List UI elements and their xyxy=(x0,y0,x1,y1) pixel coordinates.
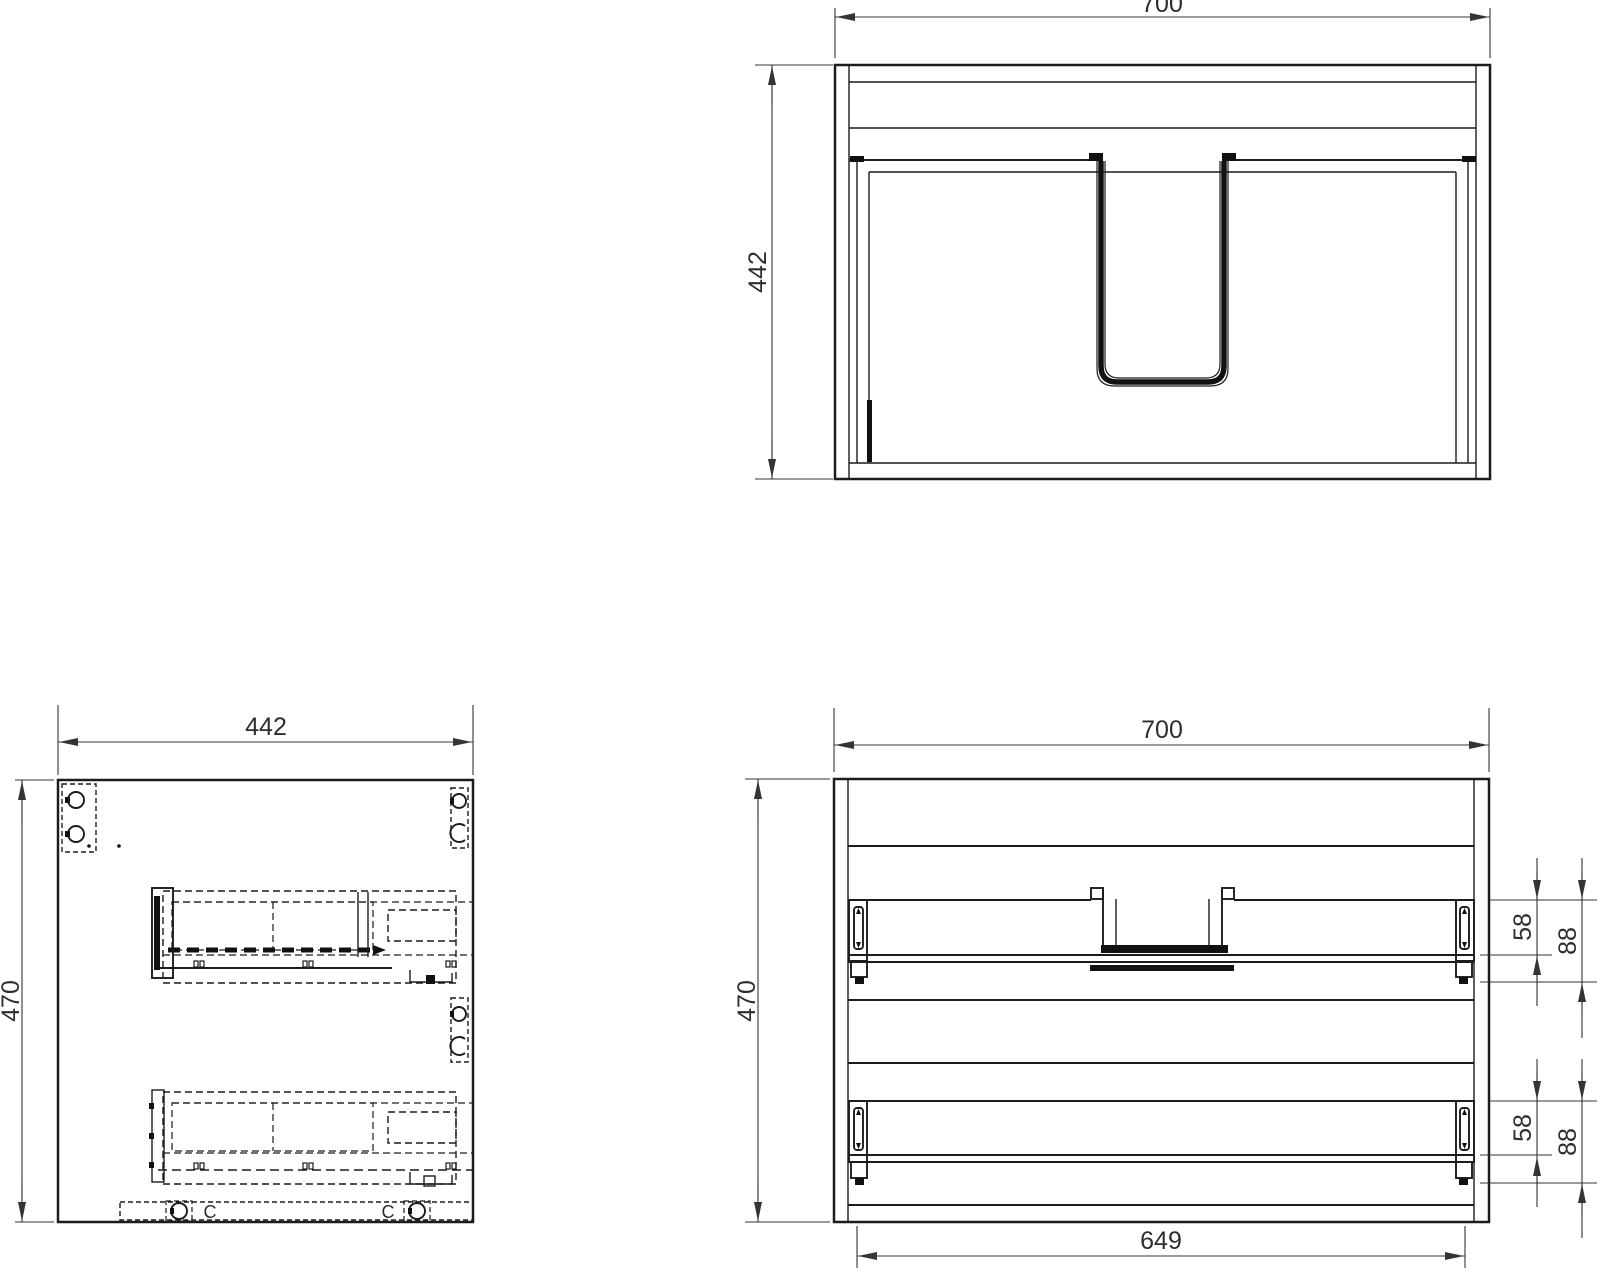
pilot-mark xyxy=(87,844,91,848)
bottom-fixing-strip: C C xyxy=(120,1201,473,1222)
upper-drawer-hidden-lines xyxy=(152,888,473,984)
top-view-width-label: 700 xyxy=(1141,0,1183,18)
cam-hardware-top-right xyxy=(450,788,468,848)
front-view-height-label: 470 xyxy=(733,980,761,1022)
side-view-width-label: 442 xyxy=(245,713,287,741)
top-view: 700 442 xyxy=(744,0,1490,479)
front-view-dim-height: 470 xyxy=(733,779,830,1222)
front-view-dim-inner-width: 649 xyxy=(857,1226,1465,1268)
front-view-carcass xyxy=(834,779,1489,1222)
front-view-width-label: 700 xyxy=(1141,716,1183,744)
lower-drawer-hidden-lines xyxy=(149,1090,473,1186)
lower-right-slide-bracket xyxy=(1456,1101,1474,1185)
top-view-dim-width: 700 xyxy=(835,0,1490,58)
lower-rail-58-label: 58 xyxy=(1509,1114,1537,1142)
lower-left-slide-bracket xyxy=(849,1101,867,1185)
upper-rail-88-label: 88 xyxy=(1554,927,1582,955)
lower-rail-dims: 58 88 xyxy=(1480,1059,1597,1238)
upper-left-slide-bracket xyxy=(849,900,867,984)
top-view-carcass xyxy=(835,65,1490,479)
cam-hardware-mid-right xyxy=(450,998,468,1062)
side-view-dim-width: 442 xyxy=(58,705,473,775)
pilot-mark xyxy=(117,844,121,848)
lower-rail-88-label: 88 xyxy=(1554,1128,1582,1156)
top-view-dim-depth: 442 xyxy=(744,65,833,479)
side-view-height-label: 470 xyxy=(0,980,25,1022)
side-view-dim-height: 470 xyxy=(0,780,54,1222)
upper-rail-dims: 58 88 xyxy=(1480,858,1597,1038)
cam-hardware-top-left xyxy=(62,784,96,852)
upper-rail-58-label: 58 xyxy=(1509,913,1537,941)
upper-right-slide-bracket xyxy=(1456,900,1474,984)
cutout-tab-left xyxy=(1089,153,1103,161)
upper-drawer-back-plate xyxy=(388,910,456,941)
siphon-cutout xyxy=(1089,153,1236,386)
siphon-recess-front xyxy=(1090,888,1234,971)
lower-drawer-back-plate xyxy=(388,1112,456,1143)
front-view: 700 470 649 58 xyxy=(733,708,1597,1268)
cam-label-left: C xyxy=(204,1202,217,1222)
cutout-tab-right xyxy=(1222,153,1236,161)
top-view-depth-label: 442 xyxy=(744,251,772,293)
side-view: C C 442 470 xyxy=(0,705,473,1222)
front-view-inner-width-label: 649 xyxy=(1140,1227,1182,1255)
cam-label-right: C xyxy=(382,1202,395,1222)
technical-drawing-canvas: 700 442 xyxy=(0,0,1600,1277)
front-view-dim-width: 700 xyxy=(834,708,1489,772)
